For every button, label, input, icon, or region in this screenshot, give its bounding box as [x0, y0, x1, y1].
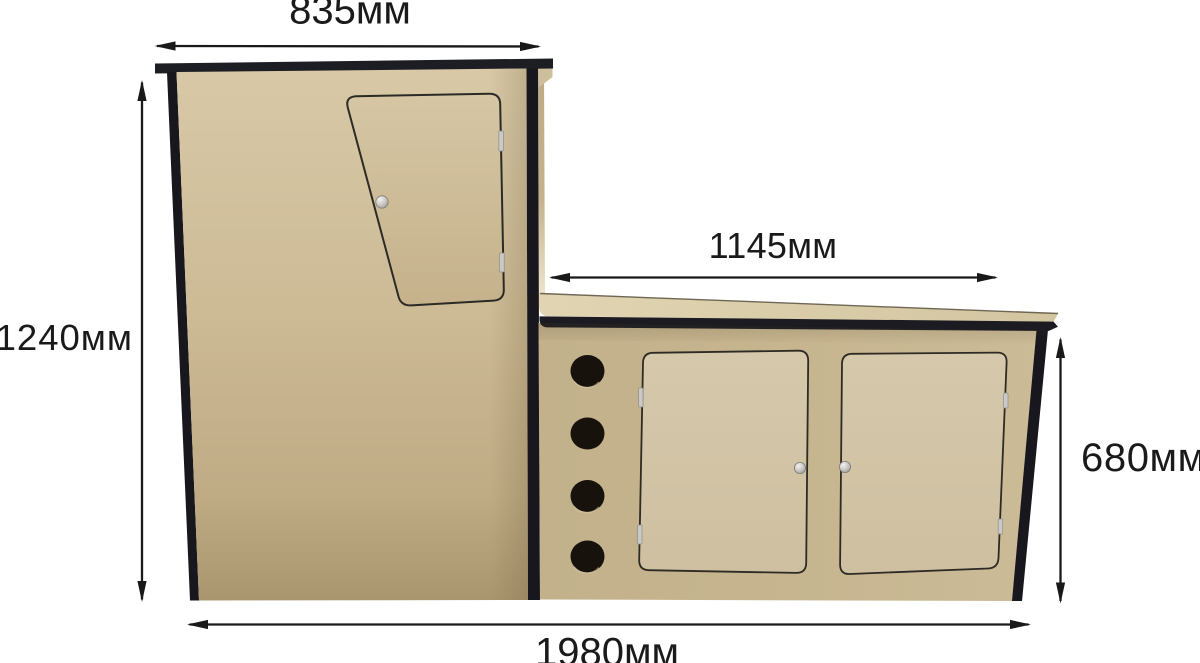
- svg-text:680мм: 680мм: [1081, 436, 1200, 480]
- svg-text:1980мм: 1980мм: [535, 631, 679, 663]
- svg-text:835мм: 835мм: [289, 0, 411, 33]
- svg-text:1145мм: 1145мм: [709, 225, 838, 266]
- svg-text:1240мм: 1240мм: [0, 317, 133, 358]
